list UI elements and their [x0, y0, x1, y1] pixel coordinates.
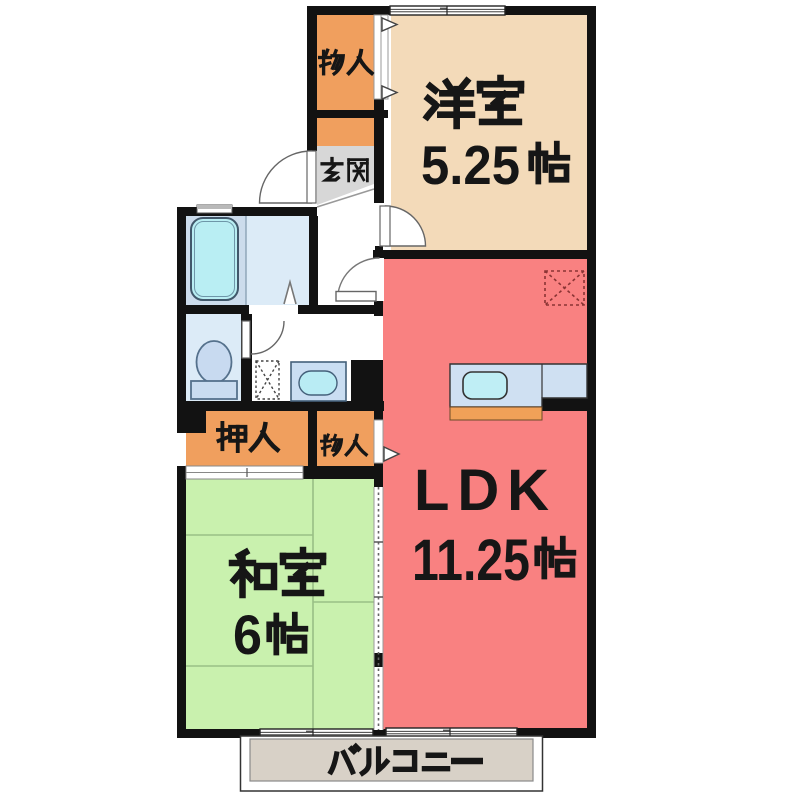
- svg-text:11.25: 11.25: [412, 528, 530, 593]
- svg-text:6: 6: [233, 603, 262, 666]
- svg-text:LDK: LDK: [414, 458, 549, 523]
- svg-text:5.25: 5.25: [421, 134, 520, 196]
